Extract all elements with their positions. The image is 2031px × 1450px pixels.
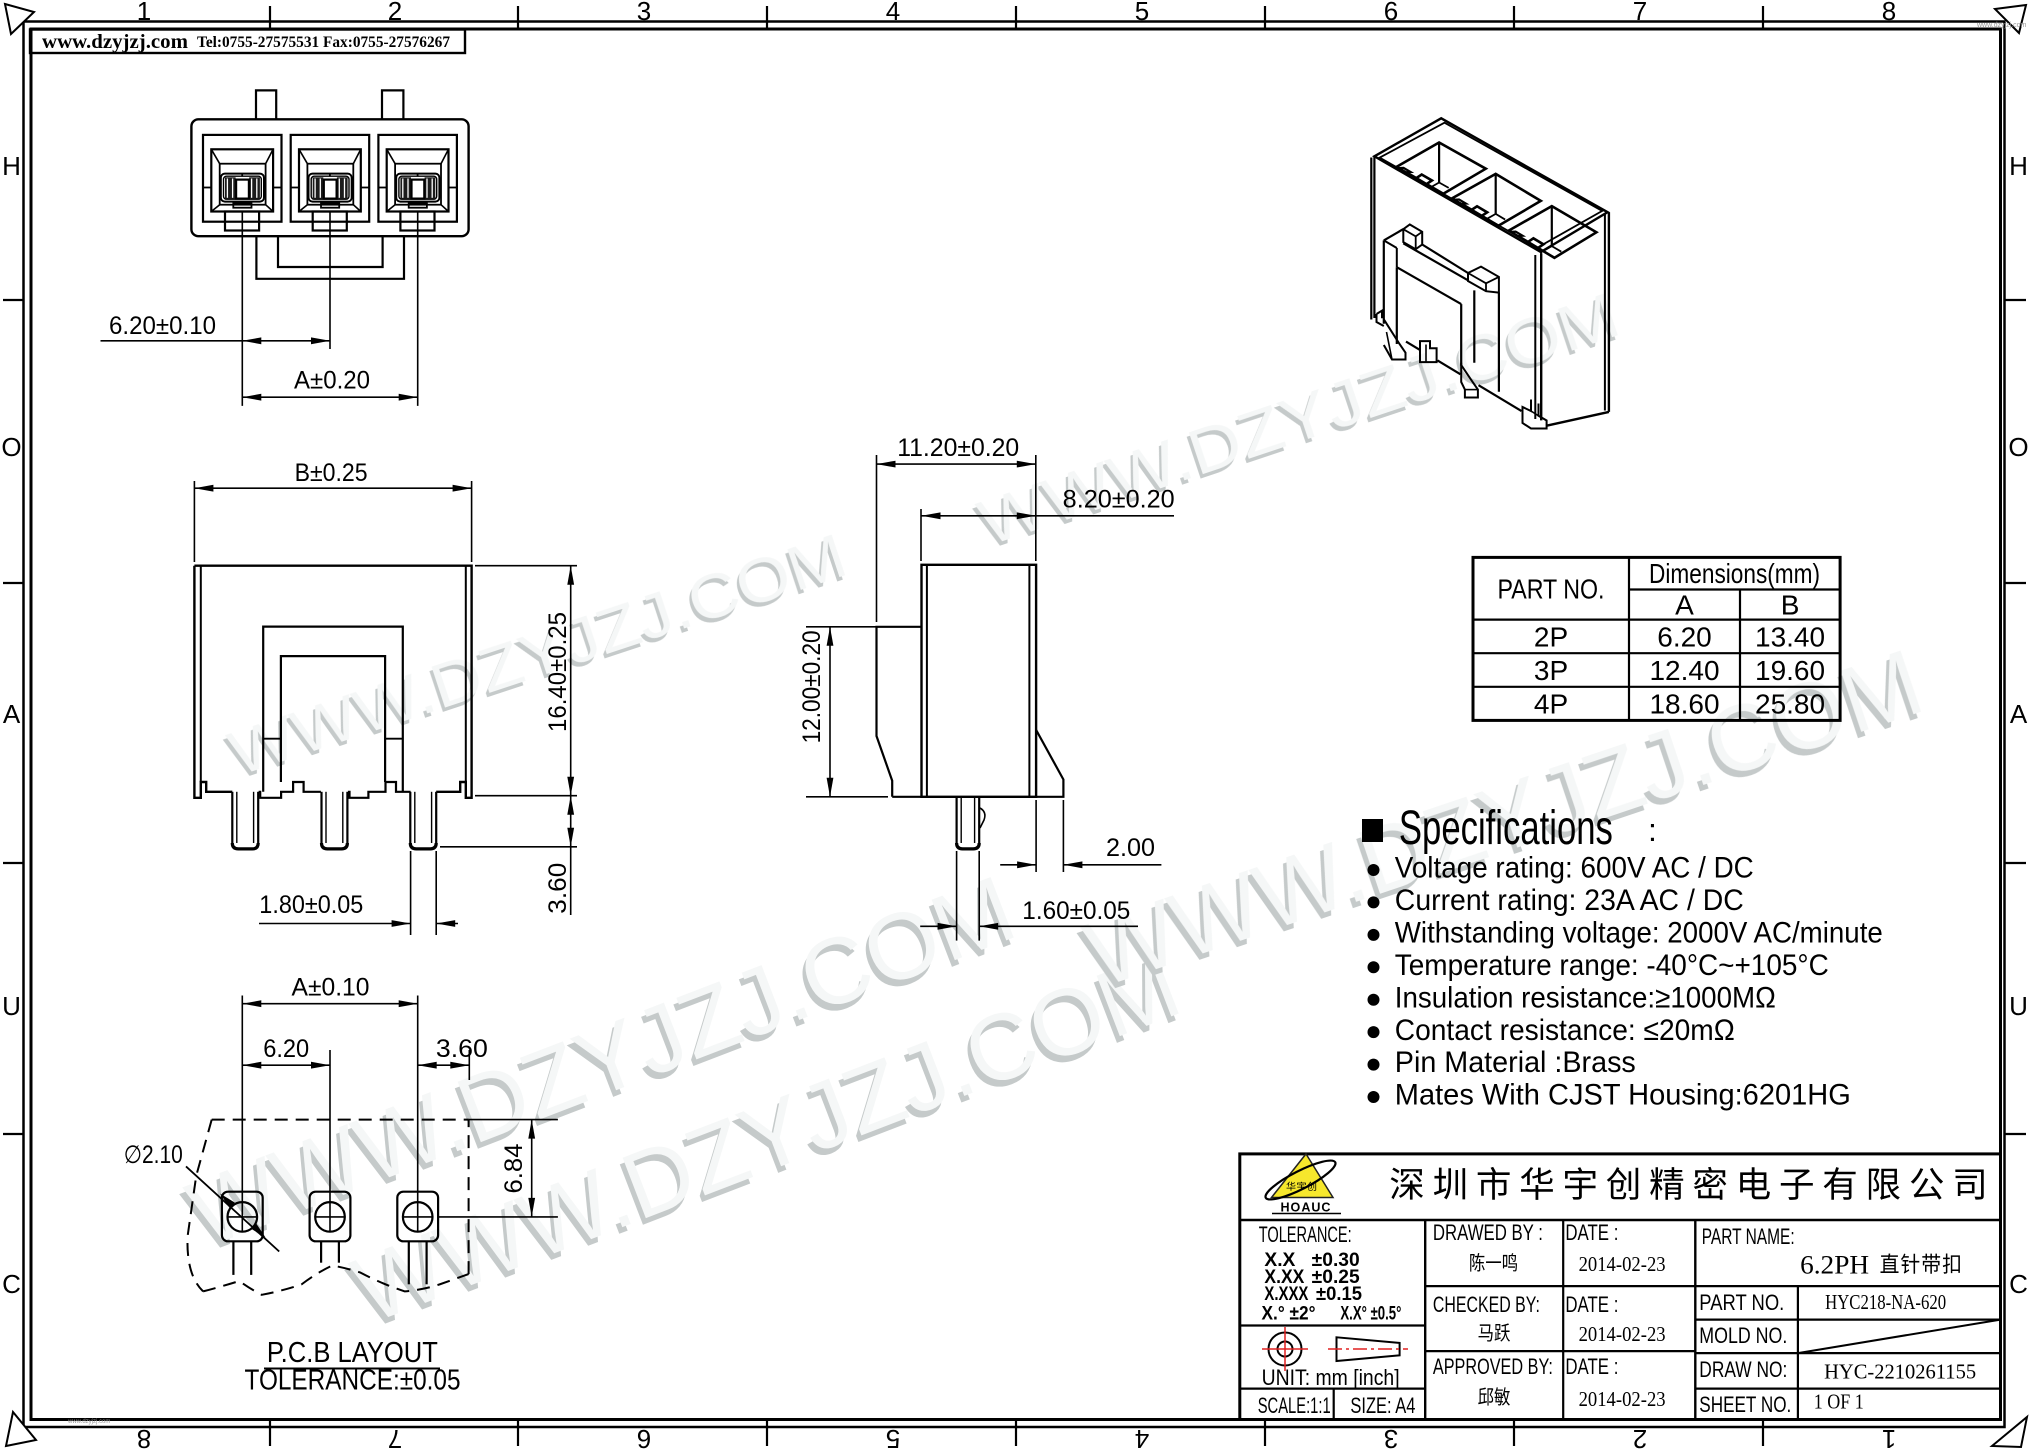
svg-text:H: H	[2009, 151, 2028, 181]
svg-text:SIZE: A4: SIZE: A4	[1350, 1393, 1415, 1418]
svg-text:19.60: 19.60	[1755, 655, 1825, 686]
svg-text:4P: 4P	[1534, 689, 1568, 720]
svg-text:SCALE:1:1: SCALE:1:1	[1258, 1393, 1331, 1418]
svg-text:A: A	[2010, 699, 2028, 729]
svg-text:8.20±0.20: 8.20±0.20	[1063, 486, 1175, 514]
svg-text:UNIT: mm [inch]: UNIT: mm [inch]	[1262, 1365, 1400, 1390]
svg-text:2P: 2P	[1534, 621, 1568, 652]
svg-text:www.dzyjzj.com: www.dzyjzj.com	[67, 1419, 110, 1425]
svg-text:Tel:0755-27575531 Fax:0755-27: Tel:0755-27575531 Fax:0755-27576267	[197, 34, 450, 51]
svg-text:1: 1	[1882, 1424, 1896, 1450]
svg-text:6: 6	[1384, 0, 1398, 26]
svg-text:U: U	[2009, 991, 2028, 1021]
svg-text:6: 6	[637, 1424, 651, 1450]
svg-text:6.20: 6.20	[1657, 621, 1712, 652]
svg-text:1.80±0.05: 1.80±0.05	[259, 891, 363, 919]
svg-text:3P: 3P	[1534, 655, 1568, 686]
svg-text:2014-02-23: 2014-02-23	[1579, 1387, 1666, 1411]
svg-text:MOLD NO.: MOLD NO.	[1699, 1323, 1787, 1348]
svg-text:2: 2	[1633, 1424, 1647, 1450]
svg-text:25.80: 25.80	[1755, 689, 1825, 720]
svg-text:5: 5	[1135, 0, 1149, 26]
svg-text:2.00: 2.00	[1106, 834, 1155, 862]
svg-text:6.84: 6.84	[500, 1143, 528, 1193]
svg-text:1.60±0.05: 1.60±0.05	[1022, 897, 1130, 925]
svg-text:7: 7	[388, 1424, 402, 1450]
svg-text:13.40: 13.40	[1755, 621, 1825, 652]
svg-text:11.20±0.20: 11.20±0.20	[897, 434, 1019, 462]
svg-text:TOLERANCE:: TOLERANCE:	[1259, 1222, 1352, 1247]
svg-text:4: 4	[886, 0, 900, 26]
svg-text:U: U	[2, 991, 21, 1021]
svg-text::: :	[1648, 812, 1657, 848]
svg-text:TOLERANCE:±0.05: TOLERANCE:±0.05	[245, 1365, 461, 1397]
svg-text:6.2PH: 6.2PH	[1800, 1251, 1869, 1280]
svg-text:Specifications: Specifications	[1399, 802, 1613, 855]
svg-text:6.20: 6.20	[263, 1035, 309, 1063]
svg-text:2014-02-23: 2014-02-23	[1579, 1322, 1666, 1346]
svg-text:Dimensions(mm): Dimensions(mm)	[1649, 558, 1820, 589]
svg-text:APPROVED BY:: APPROVED BY:	[1433, 1354, 1553, 1379]
svg-text:Temperature range: -40°C~+105°: Temperature range: -40°C~+105°C	[1395, 949, 1829, 982]
svg-text:O: O	[1, 432, 21, 462]
svg-text:2: 2	[388, 0, 402, 26]
svg-text:Current rating: 23A AC / DC: Current rating: 23A AC / DC	[1395, 884, 1744, 917]
svg-text:A±0.20: A±0.20	[294, 367, 370, 395]
svg-text:www.dzyjzj.com: www.dzyjzj.com	[42, 31, 188, 53]
svg-text:±0.15: ±0.15	[1316, 1284, 1362, 1305]
svg-text:1 OF 1: 1 OF 1	[1814, 1390, 1864, 1414]
svg-text:O: O	[2008, 432, 2028, 462]
svg-text:A: A	[1675, 590, 1694, 621]
svg-text:1: 1	[137, 0, 151, 26]
svg-text:SHEET NO.: SHEET NO.	[1699, 1392, 1791, 1417]
svg-text:3.60: 3.60	[436, 1035, 488, 1063]
svg-text:DATE :: DATE :	[1565, 1354, 1618, 1379]
svg-text:DRAWED BY :: DRAWED BY :	[1433, 1220, 1543, 1245]
svg-text:A: A	[3, 699, 21, 729]
svg-text:X.XXX: X.XXX	[1264, 1284, 1308, 1305]
svg-text:∅2.10: ∅2.10	[124, 1141, 183, 1169]
svg-text:B: B	[1781, 590, 1800, 621]
svg-text:C: C	[2009, 1269, 2028, 1299]
svg-text:16.40±0.25: 16.40±0.25	[544, 612, 572, 732]
svg-text:Insulation resistance:≥1000MΩ: Insulation resistance:≥1000MΩ	[1395, 981, 1776, 1014]
svg-text:HYC-2210261155: HYC-2210261155	[1824, 1360, 1976, 1384]
svg-text:Pin Material :Brass: Pin Material :Brass	[1395, 1046, 1636, 1079]
svg-text:12.40: 12.40	[1649, 655, 1719, 686]
svg-text:3: 3	[637, 0, 651, 26]
svg-text:B±0.25: B±0.25	[295, 459, 368, 487]
svg-text:Voltage rating: 600V AC / DC: Voltage rating: 600V AC / DC	[1395, 852, 1754, 885]
svg-text:PART NO.: PART NO.	[1699, 1290, 1784, 1315]
svg-text:A±0.10: A±0.10	[292, 974, 370, 1002]
svg-text:18.60: 18.60	[1649, 689, 1719, 720]
svg-text:X.° ±2°: X.° ±2°	[1262, 1304, 1316, 1325]
svg-text:8: 8	[1882, 0, 1896, 26]
svg-text:3: 3	[1384, 1424, 1398, 1450]
svg-text:6.20±0.10: 6.20±0.10	[109, 312, 216, 340]
svg-text:Mates With CJST Housing:6201H: Mates With CJST Housing:6201HG	[1395, 1079, 1851, 1112]
svg-text:PART NAME:: PART NAME:	[1702, 1224, 1795, 1249]
svg-text:Contact resistance: ≤20mΩ: Contact resistance: ≤20mΩ	[1395, 1014, 1735, 1047]
svg-text:Withstanding voltage: 2000V AC: Withstanding voltage: 2000V AC/minute	[1395, 916, 1883, 949]
svg-text:HOAUC: HOAUC	[1281, 1201, 1332, 1215]
svg-text:HYC218-NA-620: HYC218-NA-620	[1825, 1290, 1946, 1314]
svg-text:DATE :: DATE :	[1565, 1292, 1618, 1317]
svg-text:C: C	[2, 1269, 21, 1299]
svg-text:12.00±0.20: 12.00±0.20	[798, 630, 826, 743]
svg-text:X.X° ±0.5°: X.X° ±0.5°	[1340, 1304, 1401, 1325]
svg-text:8: 8	[137, 1424, 151, 1450]
svg-text:DRAW NO:: DRAW NO:	[1699, 1357, 1787, 1382]
svg-text:PART NO.: PART NO.	[1498, 574, 1605, 605]
svg-text:www.dzyjzj.com: www.dzyjzj.com	[1976, 22, 2027, 29]
svg-text:DATE :: DATE :	[1565, 1220, 1618, 1245]
svg-text:H: H	[2, 151, 21, 181]
svg-text:2014-02-23: 2014-02-23	[1579, 1252, 1666, 1276]
svg-text:3.60: 3.60	[544, 863, 572, 914]
svg-text:5: 5	[886, 1424, 900, 1450]
svg-text:CHECKED BY:: CHECKED BY:	[1433, 1292, 1540, 1317]
svg-text:7: 7	[1633, 0, 1647, 26]
svg-text:4: 4	[1135, 1424, 1149, 1450]
